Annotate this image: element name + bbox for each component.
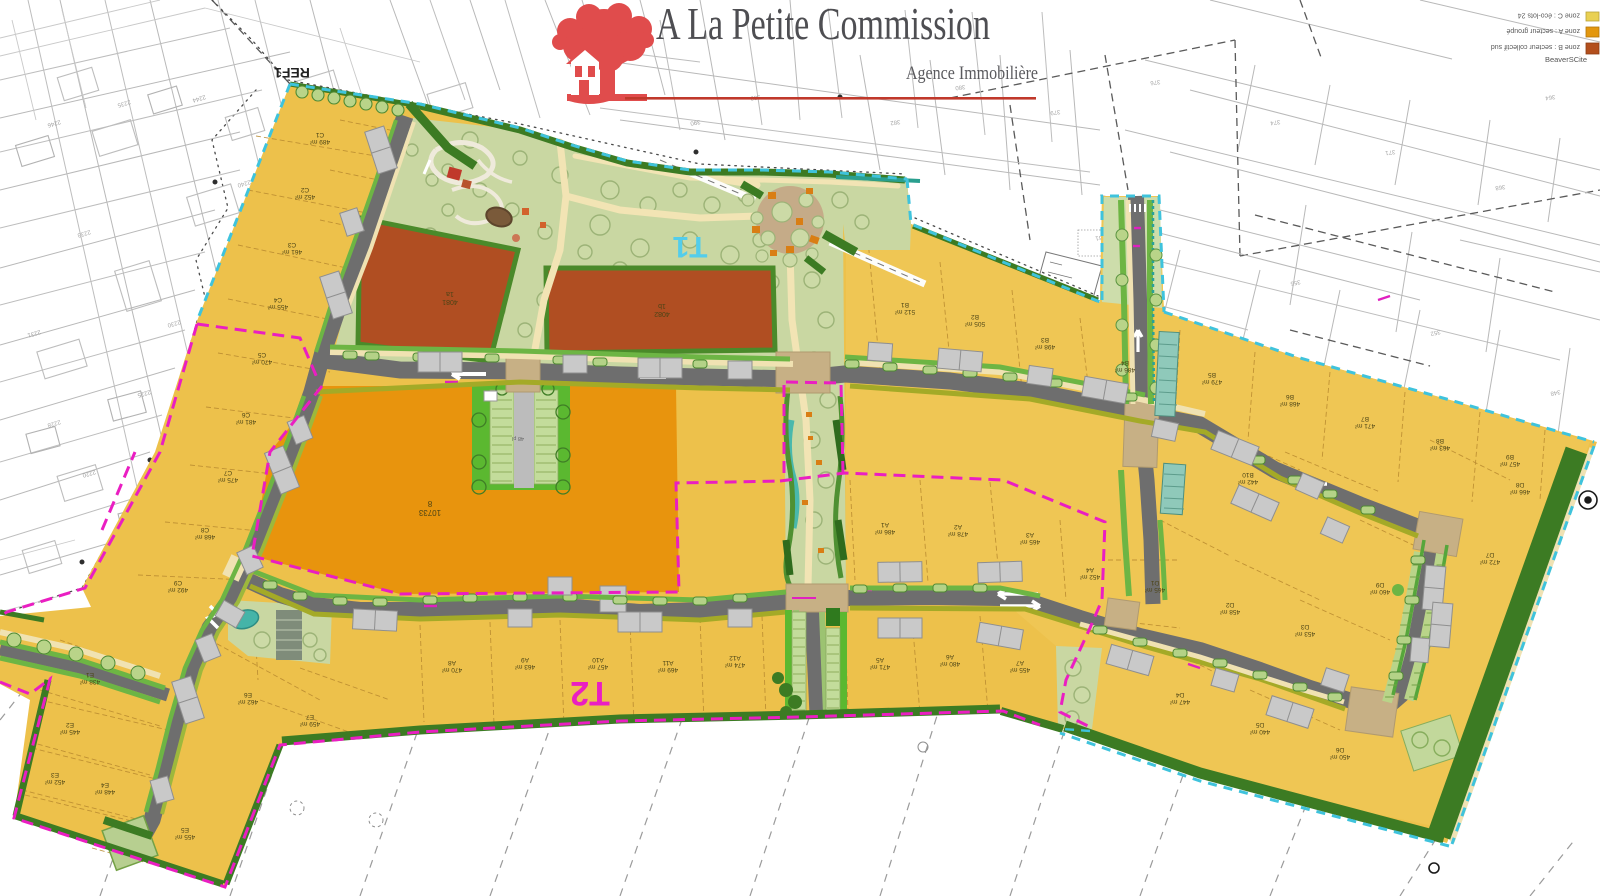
svg-text:C3: C3 <box>287 241 296 248</box>
svg-text:465 m²: 465 m² <box>1019 538 1040 545</box>
svg-text:E5: E5 <box>181 826 189 833</box>
svg-text:B5: B5 <box>1208 371 1216 378</box>
svg-text:492 m²: 492 m² <box>167 586 188 593</box>
svg-text:471 m²: 471 m² <box>1354 422 1375 429</box>
svg-text:1b: 1b <box>658 302 666 309</box>
svg-text:zone A : secteur groupé: zone A : secteur groupé <box>1506 27 1580 34</box>
svg-text:450 m²: 450 m² <box>1329 753 1350 760</box>
svg-text:472 m²: 472 m² <box>1479 558 1500 565</box>
svg-text:455 m²: 455 m² <box>174 833 195 840</box>
svg-text:4082: 4082 <box>654 310 670 317</box>
svg-text:478 m²: 478 m² <box>947 530 968 537</box>
svg-text:481 m²: 481 m² <box>235 418 256 425</box>
svg-text:C1: C1 <box>315 131 324 138</box>
svg-text:462 m²: 462 m² <box>237 698 258 705</box>
svg-text:BeaverSCite: BeaverSCite <box>1545 55 1587 64</box>
svg-text:C6: C6 <box>241 411 250 418</box>
svg-text:505 m²: 505 m² <box>964 320 985 327</box>
svg-text:D7: D7 <box>1485 551 1494 558</box>
svg-text:469 m²: 469 m² <box>657 666 678 673</box>
svg-text:458 m²: 458 m² <box>1219 608 1240 615</box>
svg-text:E2: E2 <box>66 721 74 728</box>
svg-text:REF1: REF1 <box>274 65 310 81</box>
svg-text:498 m²: 498 m² <box>1034 343 1055 350</box>
svg-text:A9: A9 <box>521 656 529 663</box>
svg-text:A10: A10 <box>592 656 604 663</box>
svg-text:461 m²: 461 m² <box>281 248 302 255</box>
svg-text:D9: D9 <box>1375 581 1384 588</box>
svg-text:486 m²: 486 m² <box>1114 366 1135 373</box>
svg-text:A11: A11 <box>662 659 673 666</box>
svg-text:zone B : secteur collectif sud: zone B : secteur collectif sud <box>1491 43 1580 50</box>
svg-text:C4: C4 <box>273 296 282 303</box>
svg-text:B1: B1 <box>901 301 909 308</box>
svg-text:8: 8 <box>427 499 432 508</box>
svg-text:480 m²: 480 m² <box>939 660 960 667</box>
svg-text:445 m²: 445 m² <box>59 728 80 735</box>
svg-text:452 m²: 452 m² <box>294 193 315 200</box>
svg-text:E4: E4 <box>101 781 109 788</box>
svg-text:A5: A5 <box>876 656 884 663</box>
svg-text:474 m²: 474 m² <box>724 661 745 668</box>
svg-text:463 m²: 463 m² <box>514 663 535 670</box>
svg-text:468 m²: 468 m² <box>194 533 215 540</box>
svg-text:E1: E1 <box>86 671 94 678</box>
svg-text:447 m²: 447 m² <box>1169 698 1190 705</box>
svg-text:B6: B6 <box>1286 393 1294 400</box>
svg-text:463 m²: 463 m² <box>1429 444 1450 451</box>
svg-text:466 m²: 466 m² <box>1509 488 1530 495</box>
svg-text:486 m²: 486 m² <box>874 528 895 535</box>
svg-text:zone C : éco-lots 24: zone C : éco-lots 24 <box>1518 12 1580 19</box>
svg-text:471 m²: 471 m² <box>869 663 890 670</box>
svg-text:468 m²: 468 m² <box>1279 400 1300 407</box>
svg-text:B9: B9 <box>1506 453 1514 460</box>
svg-text:D6: D6 <box>1335 746 1344 753</box>
svg-text:A6: A6 <box>946 653 954 660</box>
svg-text:457 m²: 457 m² <box>1499 460 1520 467</box>
svg-text:455 m²: 455 m² <box>267 303 288 310</box>
svg-text:48 pl: 48 pl <box>512 435 524 441</box>
svg-text:470 m²: 470 m² <box>441 666 462 673</box>
svg-text:489 m²: 489 m² <box>309 138 330 145</box>
svg-text:10733: 10733 <box>418 508 441 517</box>
svg-text:A7: A7 <box>1016 659 1024 666</box>
svg-text:479 m²: 479 m² <box>1201 378 1222 385</box>
svg-text:Agence Immobilière: Agence Immobilière <box>906 63 1038 84</box>
svg-text:B2: B2 <box>971 313 979 320</box>
svg-text:A12: A12 <box>729 654 741 661</box>
svg-text:452 m²: 452 m² <box>1079 573 1100 580</box>
svg-text:1a: 1a <box>446 290 454 297</box>
svg-text:465 m²: 465 m² <box>1144 586 1165 593</box>
svg-text:B8: B8 <box>1436 437 1444 444</box>
svg-text:448 m²: 448 m² <box>94 788 115 795</box>
svg-text:B7: B7 <box>1361 415 1369 422</box>
svg-text:4081: 4081 <box>442 298 458 305</box>
svg-text:C8: C8 <box>200 526 209 533</box>
svg-text:C7: C7 <box>223 469 232 476</box>
svg-text:B10: B10 <box>1242 471 1254 478</box>
svg-text:512 m²: 512 m² <box>894 308 915 315</box>
svg-text:D3: D3 <box>1300 623 1309 630</box>
svg-text:E6: E6 <box>244 691 252 698</box>
svg-text:D8: D8 <box>1515 481 1524 488</box>
svg-text:452 m²: 452 m² <box>44 778 65 785</box>
svg-text:D4: D4 <box>1175 691 1184 698</box>
svg-text:457 m²: 457 m² <box>587 663 608 670</box>
svg-text:C5: C5 <box>257 351 266 358</box>
svg-text:442 m²: 442 m² <box>1237 478 1258 485</box>
svg-text:D2: D2 <box>1225 601 1234 608</box>
svg-text:A8: A8 <box>448 659 456 666</box>
svg-text:B3: B3 <box>1041 336 1049 343</box>
svg-text:C2: C2 <box>300 186 309 193</box>
svg-text:E7: E7 <box>306 713 314 720</box>
svg-text:438 m²: 438 m² <box>79 678 100 685</box>
svg-text:440 m²: 440 m² <box>1249 728 1270 735</box>
svg-text:A3: A3 <box>1026 531 1034 538</box>
svg-text:E3: E3 <box>51 771 59 778</box>
svg-text:C9: C9 <box>173 579 182 586</box>
svg-text:459 m²: 459 m² <box>299 720 320 727</box>
svg-text:D5: D5 <box>1255 721 1264 728</box>
svg-text:A2: A2 <box>954 523 962 530</box>
svg-text:T1: T1 <box>672 230 707 263</box>
svg-text:A1: A1 <box>881 521 889 528</box>
svg-text:D1: D1 <box>1150 579 1159 586</box>
svg-text:475 m²: 475 m² <box>217 476 238 483</box>
svg-text:470 m²: 470 m² <box>251 358 272 365</box>
svg-text:460 m²: 460 m² <box>1369 588 1390 595</box>
svg-text:B4: B4 <box>1121 359 1129 366</box>
svg-text:A La Petite Commission: A La Petite Commission <box>656 0 990 49</box>
svg-text:453 m²: 453 m² <box>1294 630 1315 637</box>
svg-text:A4: A4 <box>1086 566 1094 573</box>
svg-text:T2: T2 <box>570 674 610 712</box>
svg-text:455 m²: 455 m² <box>1009 666 1030 673</box>
